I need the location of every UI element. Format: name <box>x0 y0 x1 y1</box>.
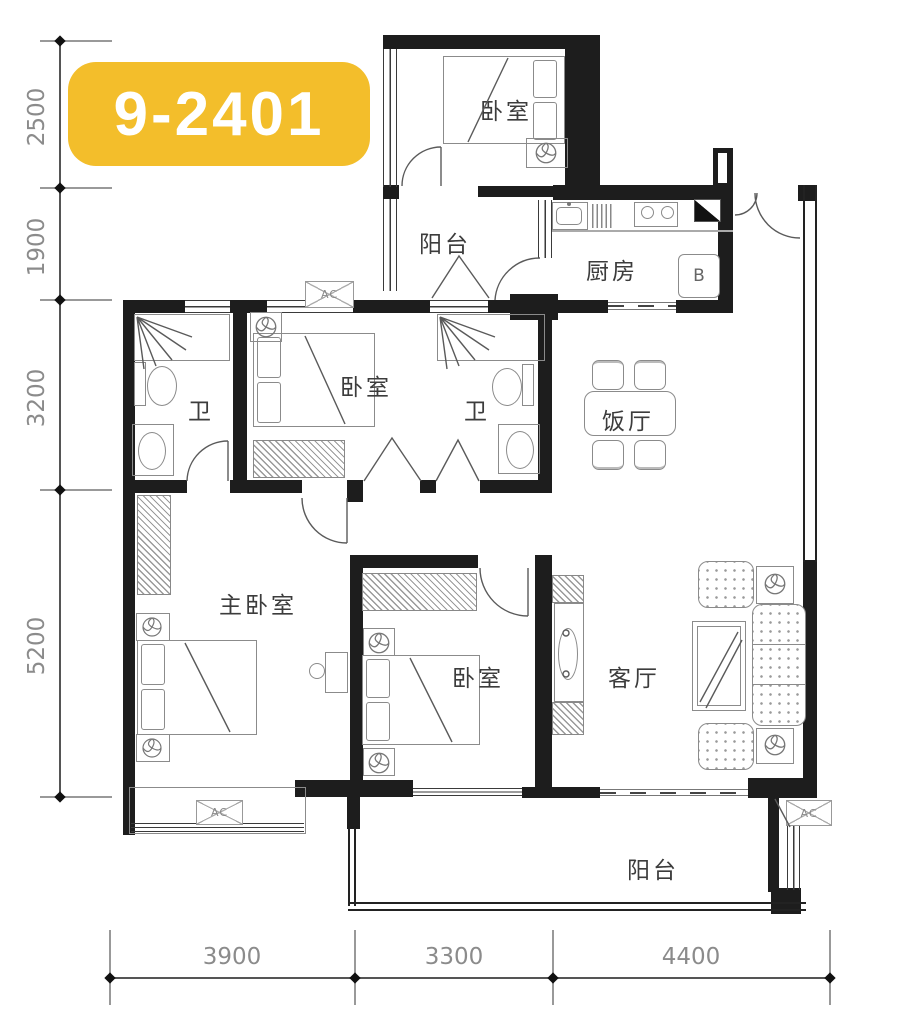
floor-plan: 9-2401 AC AC AC <box>0 0 916 1032</box>
unit-badge: 9-2401 <box>68 62 370 166</box>
